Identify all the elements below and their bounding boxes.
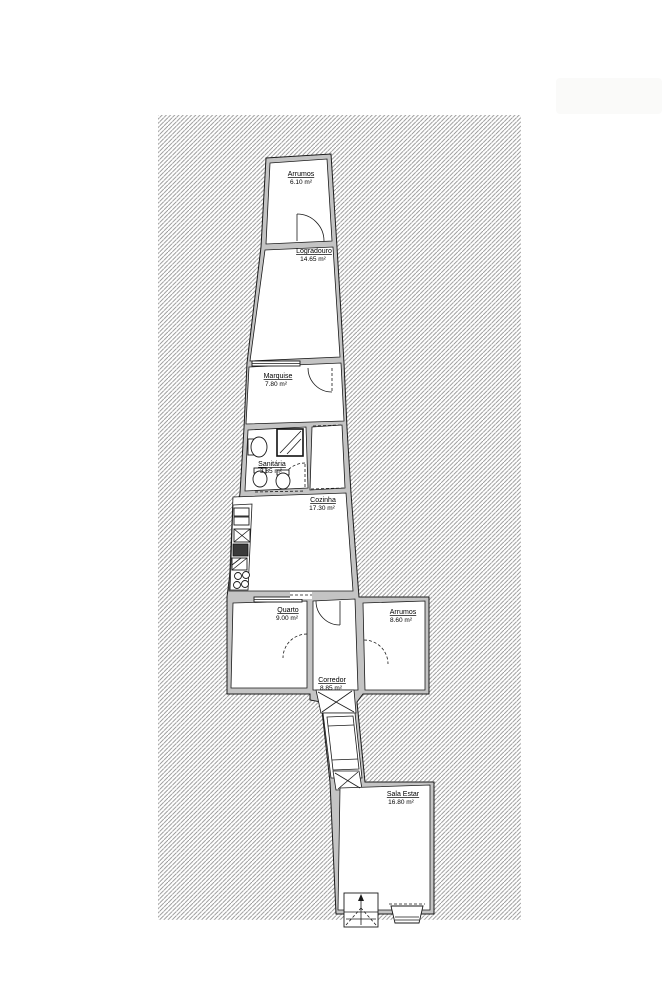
shower-icon [277,429,303,456]
area-sala-estar: 16.80 m² [388,799,414,806]
room-marquise [246,363,344,424]
label-logradouro: Logradouro [296,248,332,255]
sala-stairs [344,893,378,927]
room-logradouro [250,247,340,361]
area-logradouro: 14.65 m² [300,256,326,263]
entry-recess [389,904,425,923]
label-cozinha: Cozinha [310,497,336,504]
label-arrumos-baixo: Arrumos [390,609,417,616]
floor-plan-svg: Arrumos 6.10 m² Logradouro 14.65 m² Marq… [0,0,668,1000]
window-marquise [252,361,300,366]
room-sala-estar [338,785,430,910]
area-cozinha: 17.30 m² [309,505,335,512]
opening-cozinha-bottom [290,592,312,599]
area-marquise: 7.80 m² [265,381,288,388]
area-corredor: 8.85 m² [320,685,343,692]
floor-plan-canvas: Arrumos 6.10 m² Logradouro 14.65 m² Marq… [0,0,668,1000]
area-arrumos-baixo: 8.60 m² [390,617,413,624]
label-quarto: Quarto [277,607,299,614]
sink-icon [248,437,267,457]
label-corredor: Corredor [318,677,346,684]
label-sala-estar: Sala Estar [387,791,420,798]
label-arrumos-top: Arrumos [288,171,315,178]
label-marquise: Marquise [264,373,293,380]
room-shaft [310,425,345,490]
area-quarto: 9.00 m² [276,615,299,622]
area-arrumos-top: 6.10 m² [290,179,313,186]
label-sanitaria: Sanitária [258,461,286,468]
area-sanitaria: 3.85 m² [260,468,283,475]
